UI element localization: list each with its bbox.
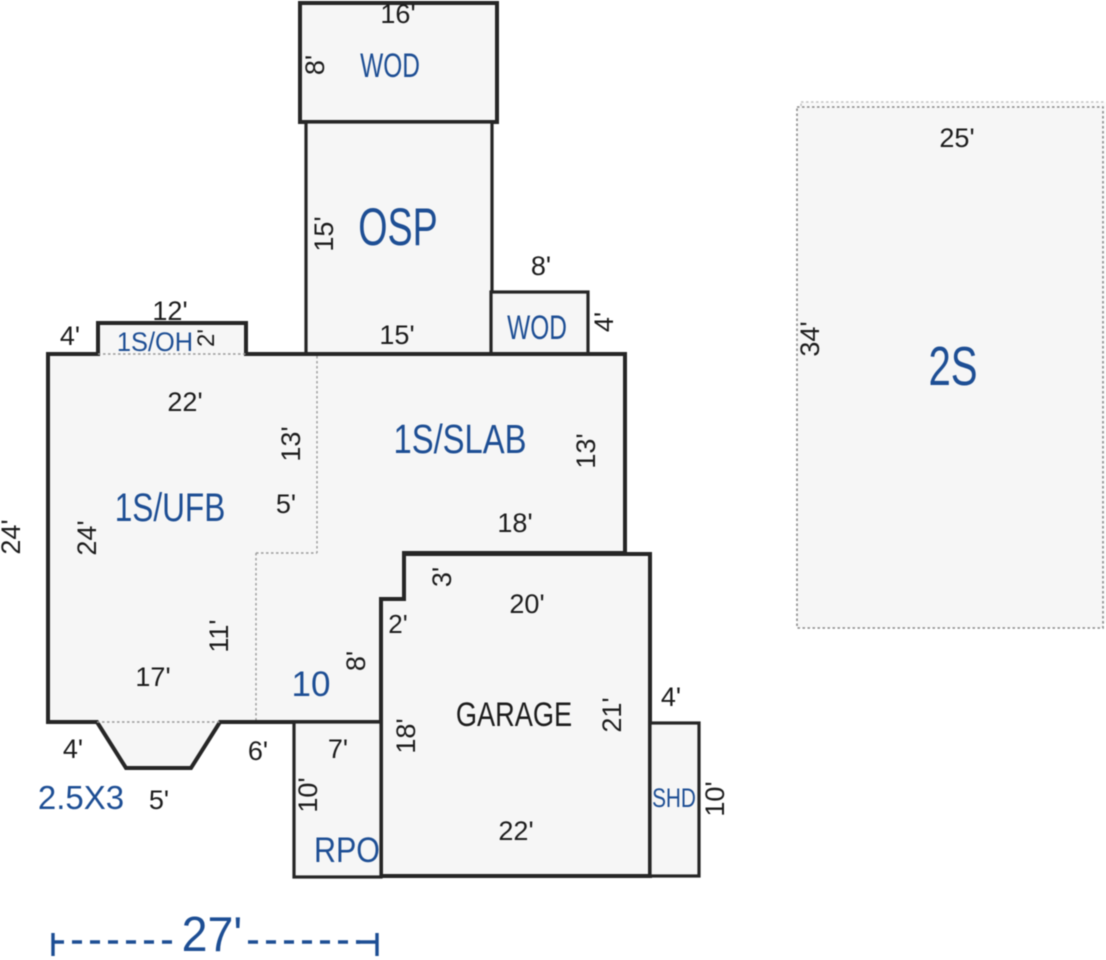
svg-text:20': 20': [509, 589, 544, 619]
svg-text:4': 4': [60, 321, 80, 351]
svg-text:24': 24': [0, 519, 26, 554]
svg-text:18': 18': [391, 718, 421, 753]
svg-text:18': 18': [497, 508, 532, 538]
svg-text:8': 8': [300, 55, 330, 75]
svg-text:11': 11': [204, 619, 234, 652]
svg-text:17': 17': [135, 662, 170, 692]
svg-text:12': 12': [152, 296, 187, 326]
svg-text:21': 21': [597, 697, 627, 732]
svg-text:OSP: OSP: [358, 197, 437, 257]
svg-text:24': 24': [72, 520, 102, 555]
svg-text:10': 10': [700, 781, 730, 816]
svg-text:15': 15': [309, 216, 339, 251]
svg-text:1S/SLAB: 1S/SLAB: [393, 415, 526, 461]
svg-text:RPO: RPO: [314, 830, 380, 869]
svg-text:8': 8': [531, 251, 551, 281]
svg-text:13': 13': [571, 433, 601, 468]
svg-text:5': 5': [276, 489, 296, 519]
svg-text:2.5X3: 2.5X3: [38, 779, 124, 816]
svg-text:15': 15': [379, 320, 414, 350]
svg-text:2': 2': [193, 329, 220, 347]
svg-text:10': 10': [293, 777, 323, 812]
svg-text:SHD: SHD: [652, 783, 696, 813]
svg-text:2S: 2S: [928, 336, 977, 398]
svg-text:8': 8': [341, 651, 371, 671]
svg-text:GARAGE: GARAGE: [456, 695, 572, 734]
svg-text:10: 10: [292, 665, 331, 704]
svg-text:4': 4': [589, 312, 619, 332]
svg-text:16': 16': [380, 0, 415, 29]
svg-text:WOD: WOD: [507, 309, 567, 347]
svg-text:1S/OH: 1S/OH: [117, 326, 193, 357]
svg-text:7': 7': [328, 734, 348, 764]
svg-text:2': 2': [388, 609, 407, 639]
svg-text:25': 25': [939, 123, 974, 153]
svg-text:3': 3': [427, 567, 457, 587]
svg-text:13': 13': [276, 426, 306, 461]
svg-text:4': 4': [63, 734, 83, 764]
svg-text:5': 5': [149, 785, 169, 815]
svg-text:6': 6': [248, 736, 268, 766]
svg-text:WOD: WOD: [360, 47, 420, 85]
svg-text:1S/UFB: 1S/UFB: [115, 484, 226, 529]
svg-text:4': 4': [661, 682, 681, 712]
svg-text:34': 34': [795, 321, 825, 356]
svg-text:22': 22': [167, 387, 202, 417]
svg-text:27': 27': [182, 908, 243, 960]
svg-text:22': 22': [498, 816, 533, 846]
